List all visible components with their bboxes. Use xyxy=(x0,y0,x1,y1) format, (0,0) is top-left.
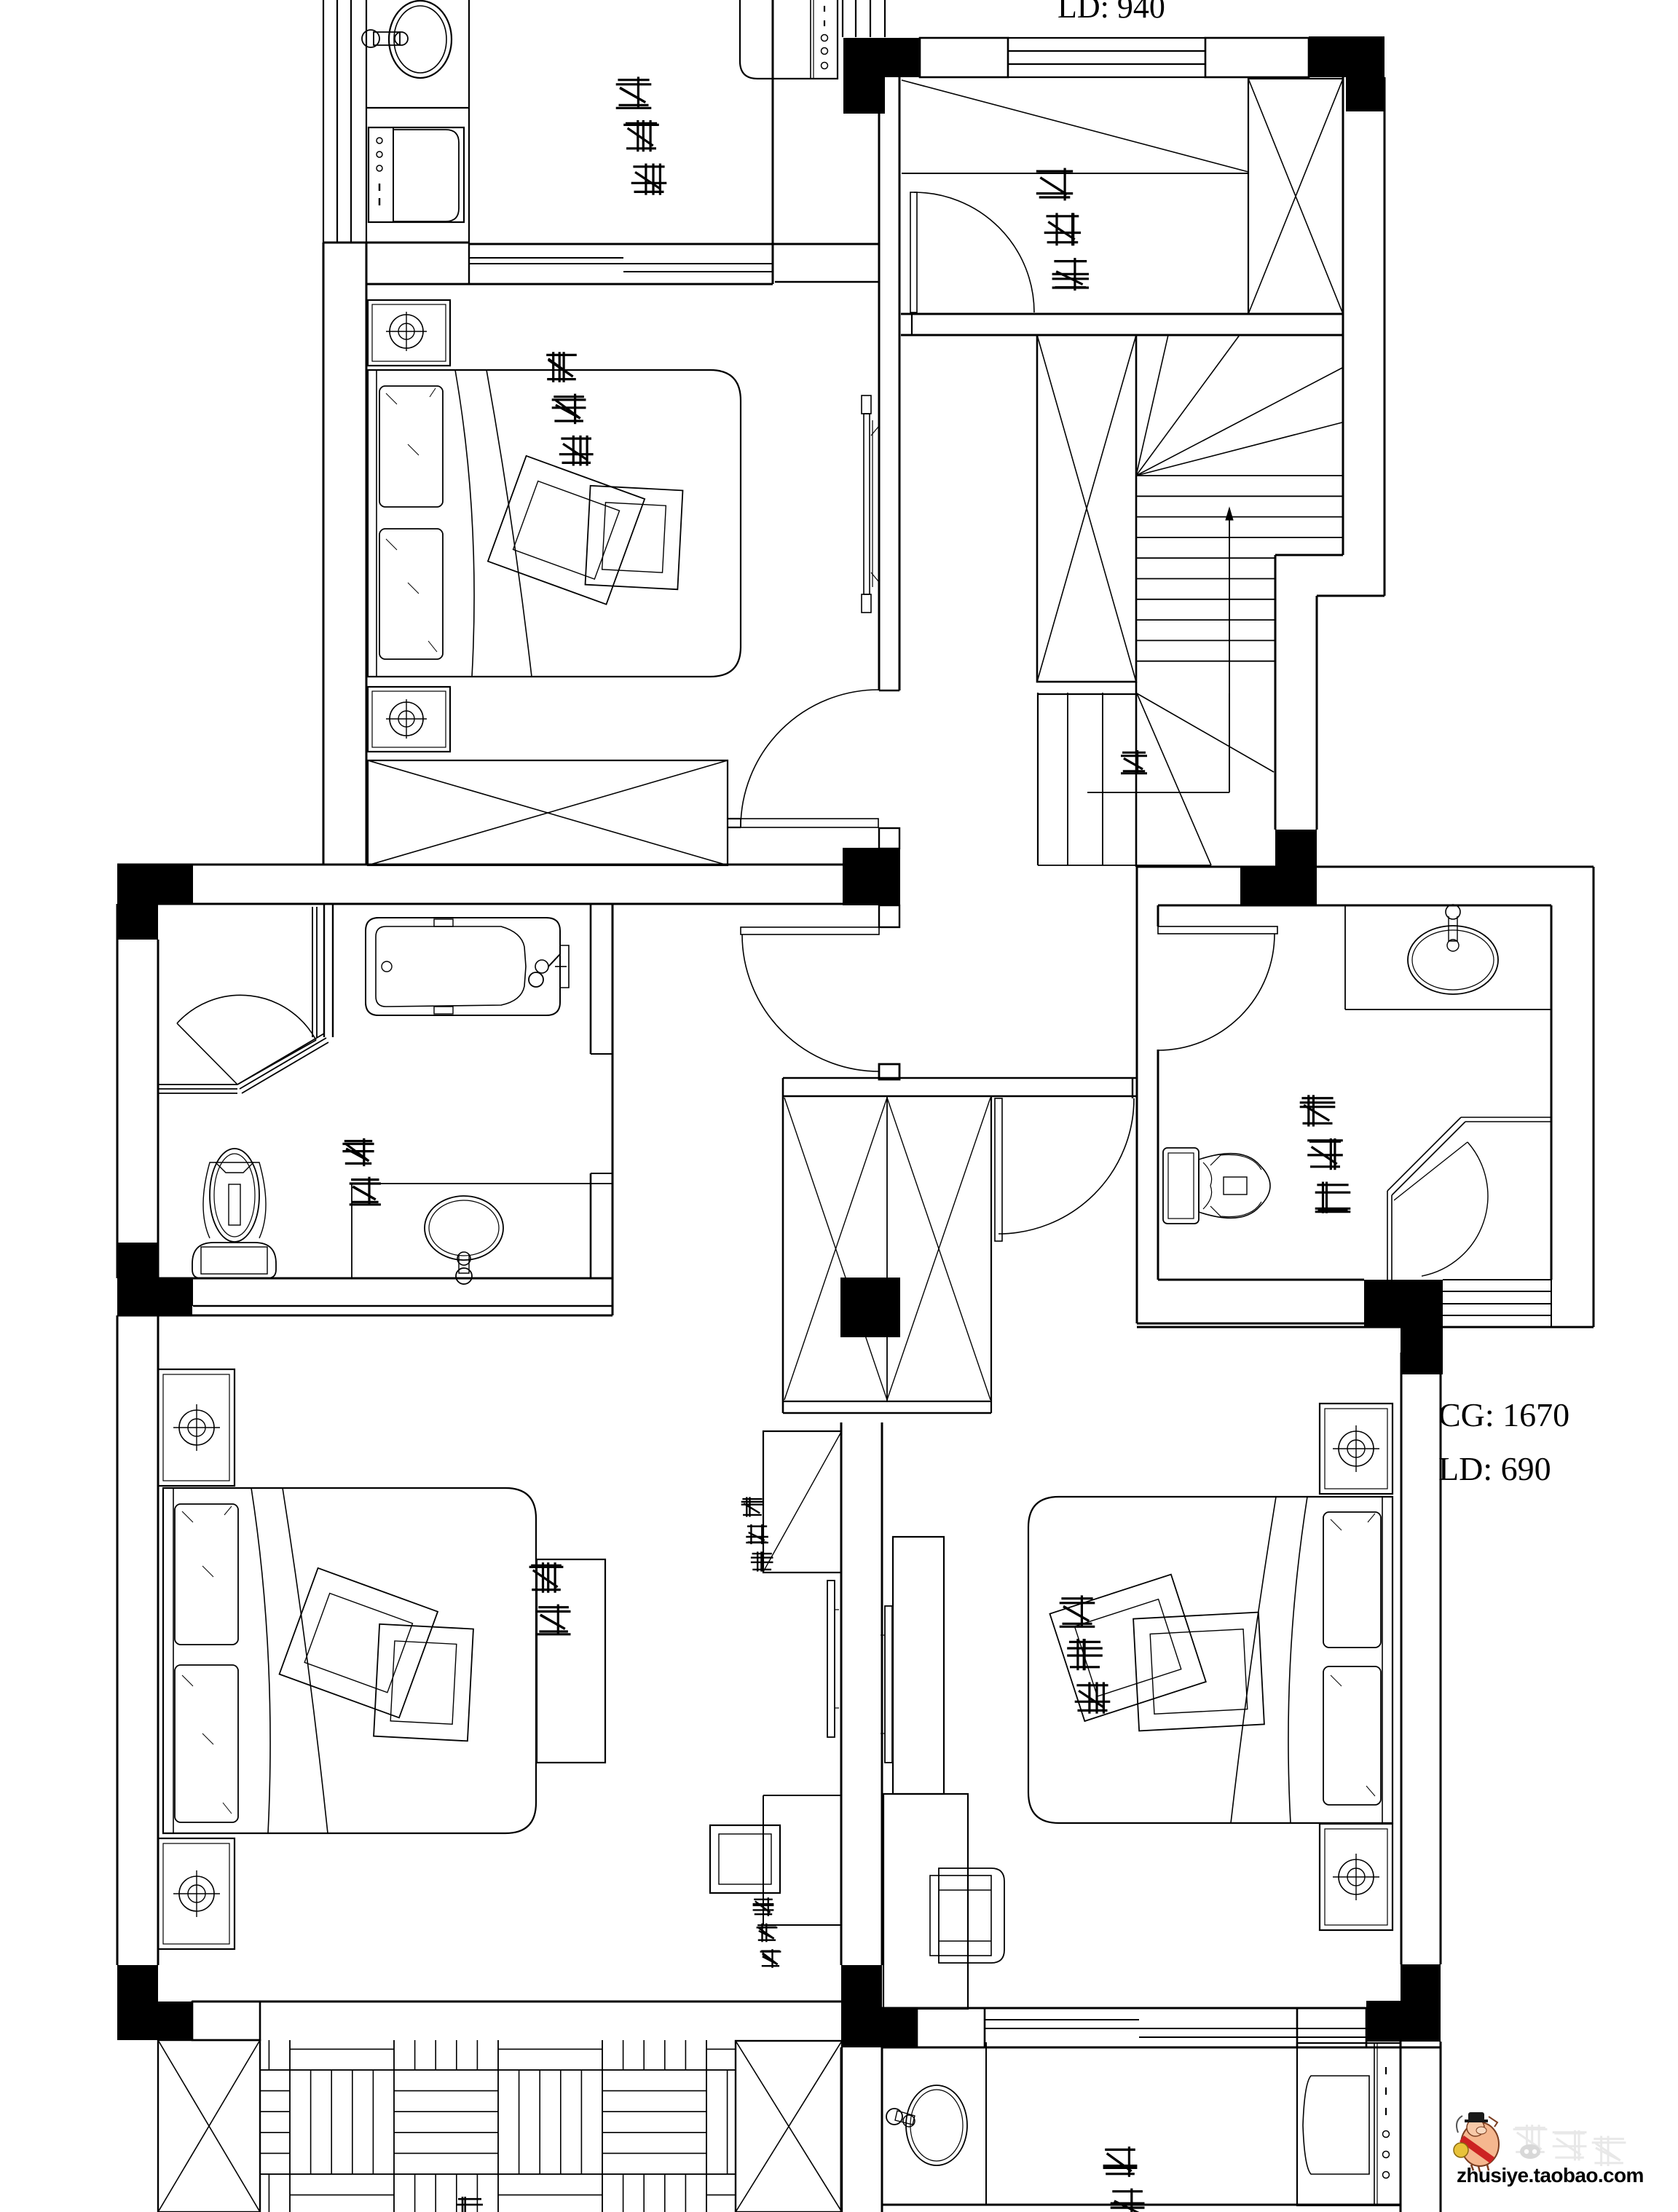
svg-text:CG: 1670: CG: 1670 xyxy=(1438,1396,1569,1433)
svg-text:LD: 690: LD: 690 xyxy=(1438,1450,1551,1487)
svg-text:LD: 940: LD: 940 xyxy=(1057,0,1165,25)
svg-text:zhusiye.taobao.com: zhusiye.taobao.com xyxy=(1457,2164,1644,2187)
